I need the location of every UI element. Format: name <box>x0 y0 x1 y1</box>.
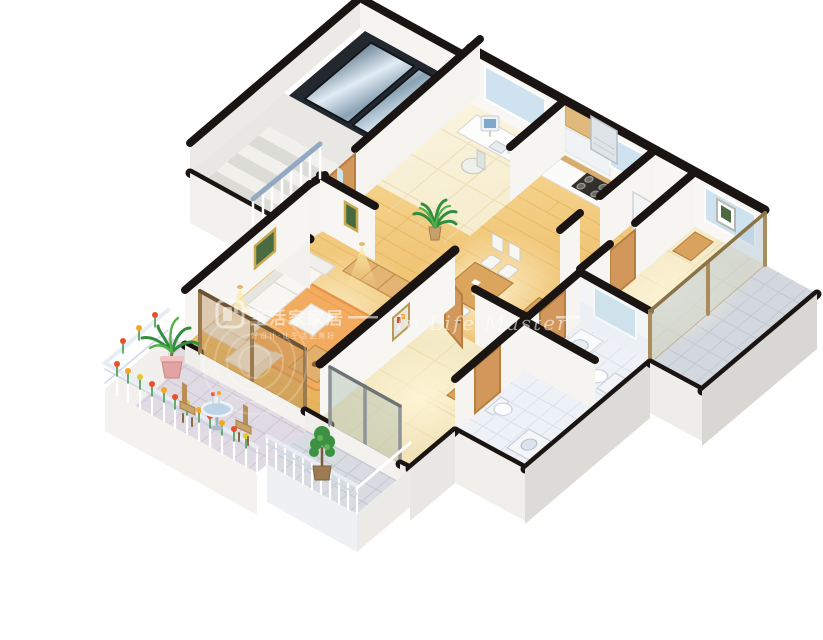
floorplan-illustration: 生活家家居 好设计·让生活更美好 In Life Master <box>0 0 823 640</box>
wall-lamp <box>237 285 243 289</box>
watermark-tagline: 好设计·让生活更美好 <box>251 331 336 340</box>
computer-screen <box>484 119 496 128</box>
table-base <box>211 426 223 431</box>
screenshot-root: 生活家家居 好设计·让生活更美好 In Life Master <box>0 0 823 640</box>
watermark-script: In Life Master <box>395 311 569 335</box>
wall-lamp <box>359 242 365 246</box>
watermark-dash-left <box>348 316 378 319</box>
watermark-dash-right <box>556 316 580 319</box>
watermark-brand: 生活家家居 <box>250 308 345 329</box>
office-chair-back <box>477 150 485 170</box>
